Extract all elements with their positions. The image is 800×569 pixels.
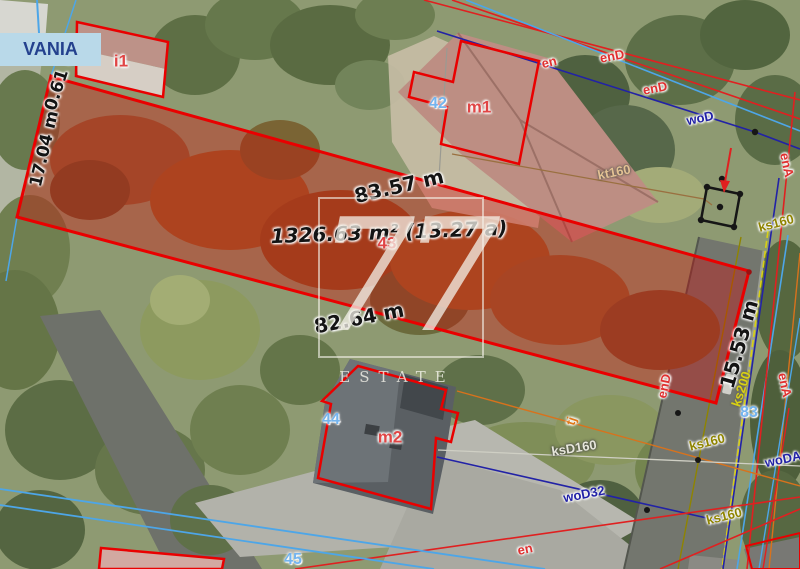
- street-name-sign: VANIA: [0, 33, 101, 66]
- utility-label-en-top: en: [540, 54, 558, 70]
- building-label-i1: i1: [114, 53, 128, 70]
- parcel-number-44: 44: [322, 412, 340, 428]
- building-label-m2: m2: [378, 429, 403, 446]
- parcel-number-45: 45: [284, 552, 302, 568]
- building-label-m1: m1: [467, 99, 492, 116]
- street-name-text: VANIA: [23, 39, 78, 60]
- cadastral-map-view: 83.57 m 1326.63 m² (13.27 a) 82.64 m 17.…: [0, 0, 800, 569]
- parcel-number-42: 42: [429, 96, 447, 112]
- watermark-brand-name: ESTATE: [339, 368, 454, 386]
- utility-label-en-bottom: en: [516, 541, 534, 557]
- watermark-logo: 77: [316, 198, 487, 354]
